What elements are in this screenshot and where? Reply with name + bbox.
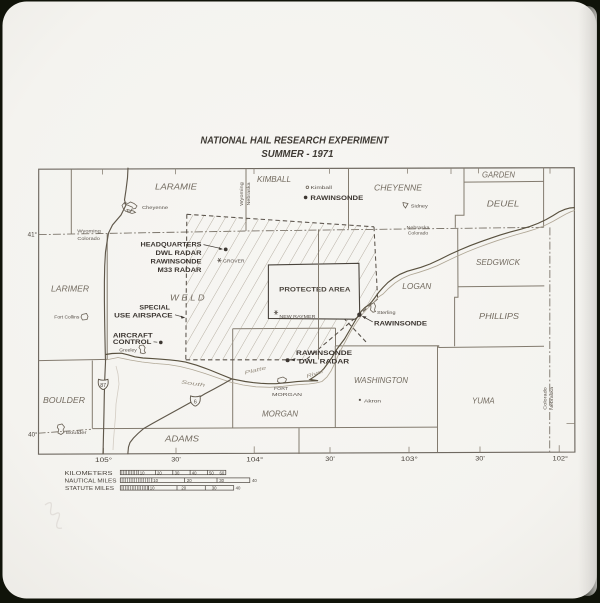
svg-text:10: 10 — [150, 486, 155, 491]
svg-text:30': 30' — [325, 456, 335, 463]
svg-text:NEW RAYMER: NEW RAYMER — [279, 314, 316, 319]
svg-text:DWL RADAR: DWL RADAR — [156, 250, 202, 257]
svg-text:WASHINGTON: WASHINGTON — [354, 375, 409, 385]
svg-text:SEDGWICK: SEDGWICK — [476, 257, 520, 267]
svg-text:6: 6 — [194, 399, 197, 405]
svg-text:GARDEN: GARDEN — [482, 170, 516, 180]
svg-text:40: 40 — [236, 486, 241, 491]
svg-text:Akron: Akron — [364, 398, 381, 404]
svg-text:Greeley: Greeley — [119, 348, 137, 354]
svg-text:STATUTE MILES: STATUTE MILES — [65, 486, 115, 492]
svg-text:Fort Collins: Fort Collins — [54, 315, 80, 321]
svg-text:CHEYENNE: CHEYENNE — [374, 183, 422, 193]
svg-text:GROVER: GROVER — [223, 258, 245, 263]
svg-text:Nebraska: Nebraska — [407, 225, 431, 230]
svg-text:M33 RADAR: M33 RADAR — [158, 267, 202, 274]
svg-text:104°: 104° — [246, 455, 264, 463]
svg-text:Wyoming: Wyoming — [77, 228, 101, 233]
svg-text:10: 10 — [153, 478, 158, 483]
svg-text:30: 30 — [219, 478, 224, 483]
svg-text:RAWINSONDE: RAWINSONDE — [151, 259, 203, 266]
svg-text:RAWINSONDE: RAWINSONDE — [296, 350, 353, 357]
svg-text:102°: 102° — [553, 454, 569, 462]
svg-text:CONTROL: CONTROL — [113, 339, 152, 346]
svg-text:Boulder: Boulder — [66, 430, 87, 436]
svg-text:MORGAN: MORGAN — [262, 409, 299, 419]
svg-text:30: 30 — [175, 470, 180, 475]
svg-text:RAWINSONDE: RAWINSONDE — [374, 321, 428, 328]
svg-text:PHILLIPS: PHILLIPS — [479, 311, 519, 321]
svg-text:87: 87 — [100, 383, 106, 389]
svg-text:YUMA: YUMA — [472, 395, 495, 405]
svg-text:20: 20 — [187, 478, 192, 483]
svg-text:Nebraska: Nebraska — [549, 386, 554, 410]
svg-text:10: 10 — [140, 470, 145, 475]
svg-text:LARIMER: LARIMER — [51, 284, 89, 294]
svg-text:41°: 41° — [28, 231, 38, 238]
svg-text:Wyoming: Wyoming — [239, 182, 244, 206]
svg-text:NATIONAL HAIL RESEARCH EXPERIM: NATIONAL HAIL RESEARCH EXPERIMENT — [201, 136, 390, 147]
svg-text:RAWINSONDE: RAWINSONDE — [310, 195, 364, 202]
svg-text:DWL RADAR: DWL RADAR — [299, 358, 350, 365]
svg-text:30': 30' — [171, 457, 181, 464]
svg-text:50: 50 — [209, 470, 214, 475]
svg-text:W E L D: W E L D — [170, 293, 205, 303]
svg-text:20: 20 — [157, 470, 162, 475]
svg-text:DEUEL: DEUEL — [487, 198, 520, 208]
svg-text:30: 30 — [212, 486, 217, 491]
svg-text:USE AIRSPACE: USE AIRSPACE — [114, 312, 173, 319]
svg-text:NAUTICAL MILES: NAUTICAL MILES — [65, 478, 118, 484]
svg-text:Nebraska: Nebraska — [246, 182, 251, 206]
svg-text:Cheyenne: Cheyenne — [142, 205, 168, 211]
svg-text:SPECIAL: SPECIAL — [139, 305, 170, 312]
svg-text:20: 20 — [181, 486, 186, 491]
svg-text:LOGAN: LOGAN — [402, 281, 432, 291]
svg-text:LARAMIE: LARAMIE — [155, 182, 197, 192]
svg-text:BOULDER: BOULDER — [43, 395, 85, 405]
svg-text:30': 30' — [475, 456, 485, 463]
svg-text:HEADQUARTERS: HEADQUARTERS — [141, 241, 203, 248]
svg-text:Sterling: Sterling — [377, 310, 396, 316]
svg-text:105°: 105° — [95, 456, 113, 464]
svg-text:MORGAN: MORGAN — [272, 392, 302, 397]
svg-text:Colorado: Colorado — [77, 236, 100, 241]
svg-text:KILOMETERS: KILOMETERS — [65, 471, 114, 477]
svg-text:PROTECTED AREA: PROTECTED AREA — [279, 286, 351, 293]
svg-text:40°: 40° — [28, 431, 38, 438]
svg-text:SUMMER - 1971: SUMMER - 1971 — [261, 149, 333, 160]
svg-text:40: 40 — [192, 470, 197, 475]
svg-text:Kimball: Kimball — [311, 185, 333, 191]
svg-text:40: 40 — [252, 478, 257, 483]
svg-text:Colorado: Colorado — [543, 387, 548, 410]
svg-text:KIMBALL: KIMBALL — [257, 174, 291, 184]
svg-text:FORT: FORT — [274, 386, 288, 391]
svg-text:Colorado: Colorado — [408, 230, 429, 235]
svg-text:Sidney: Sidney — [411, 204, 429, 210]
svg-text:ADAMS: ADAMS — [164, 434, 200, 444]
svg-text:103°: 103° — [401, 455, 419, 463]
svg-text:60: 60 — [220, 470, 225, 475]
